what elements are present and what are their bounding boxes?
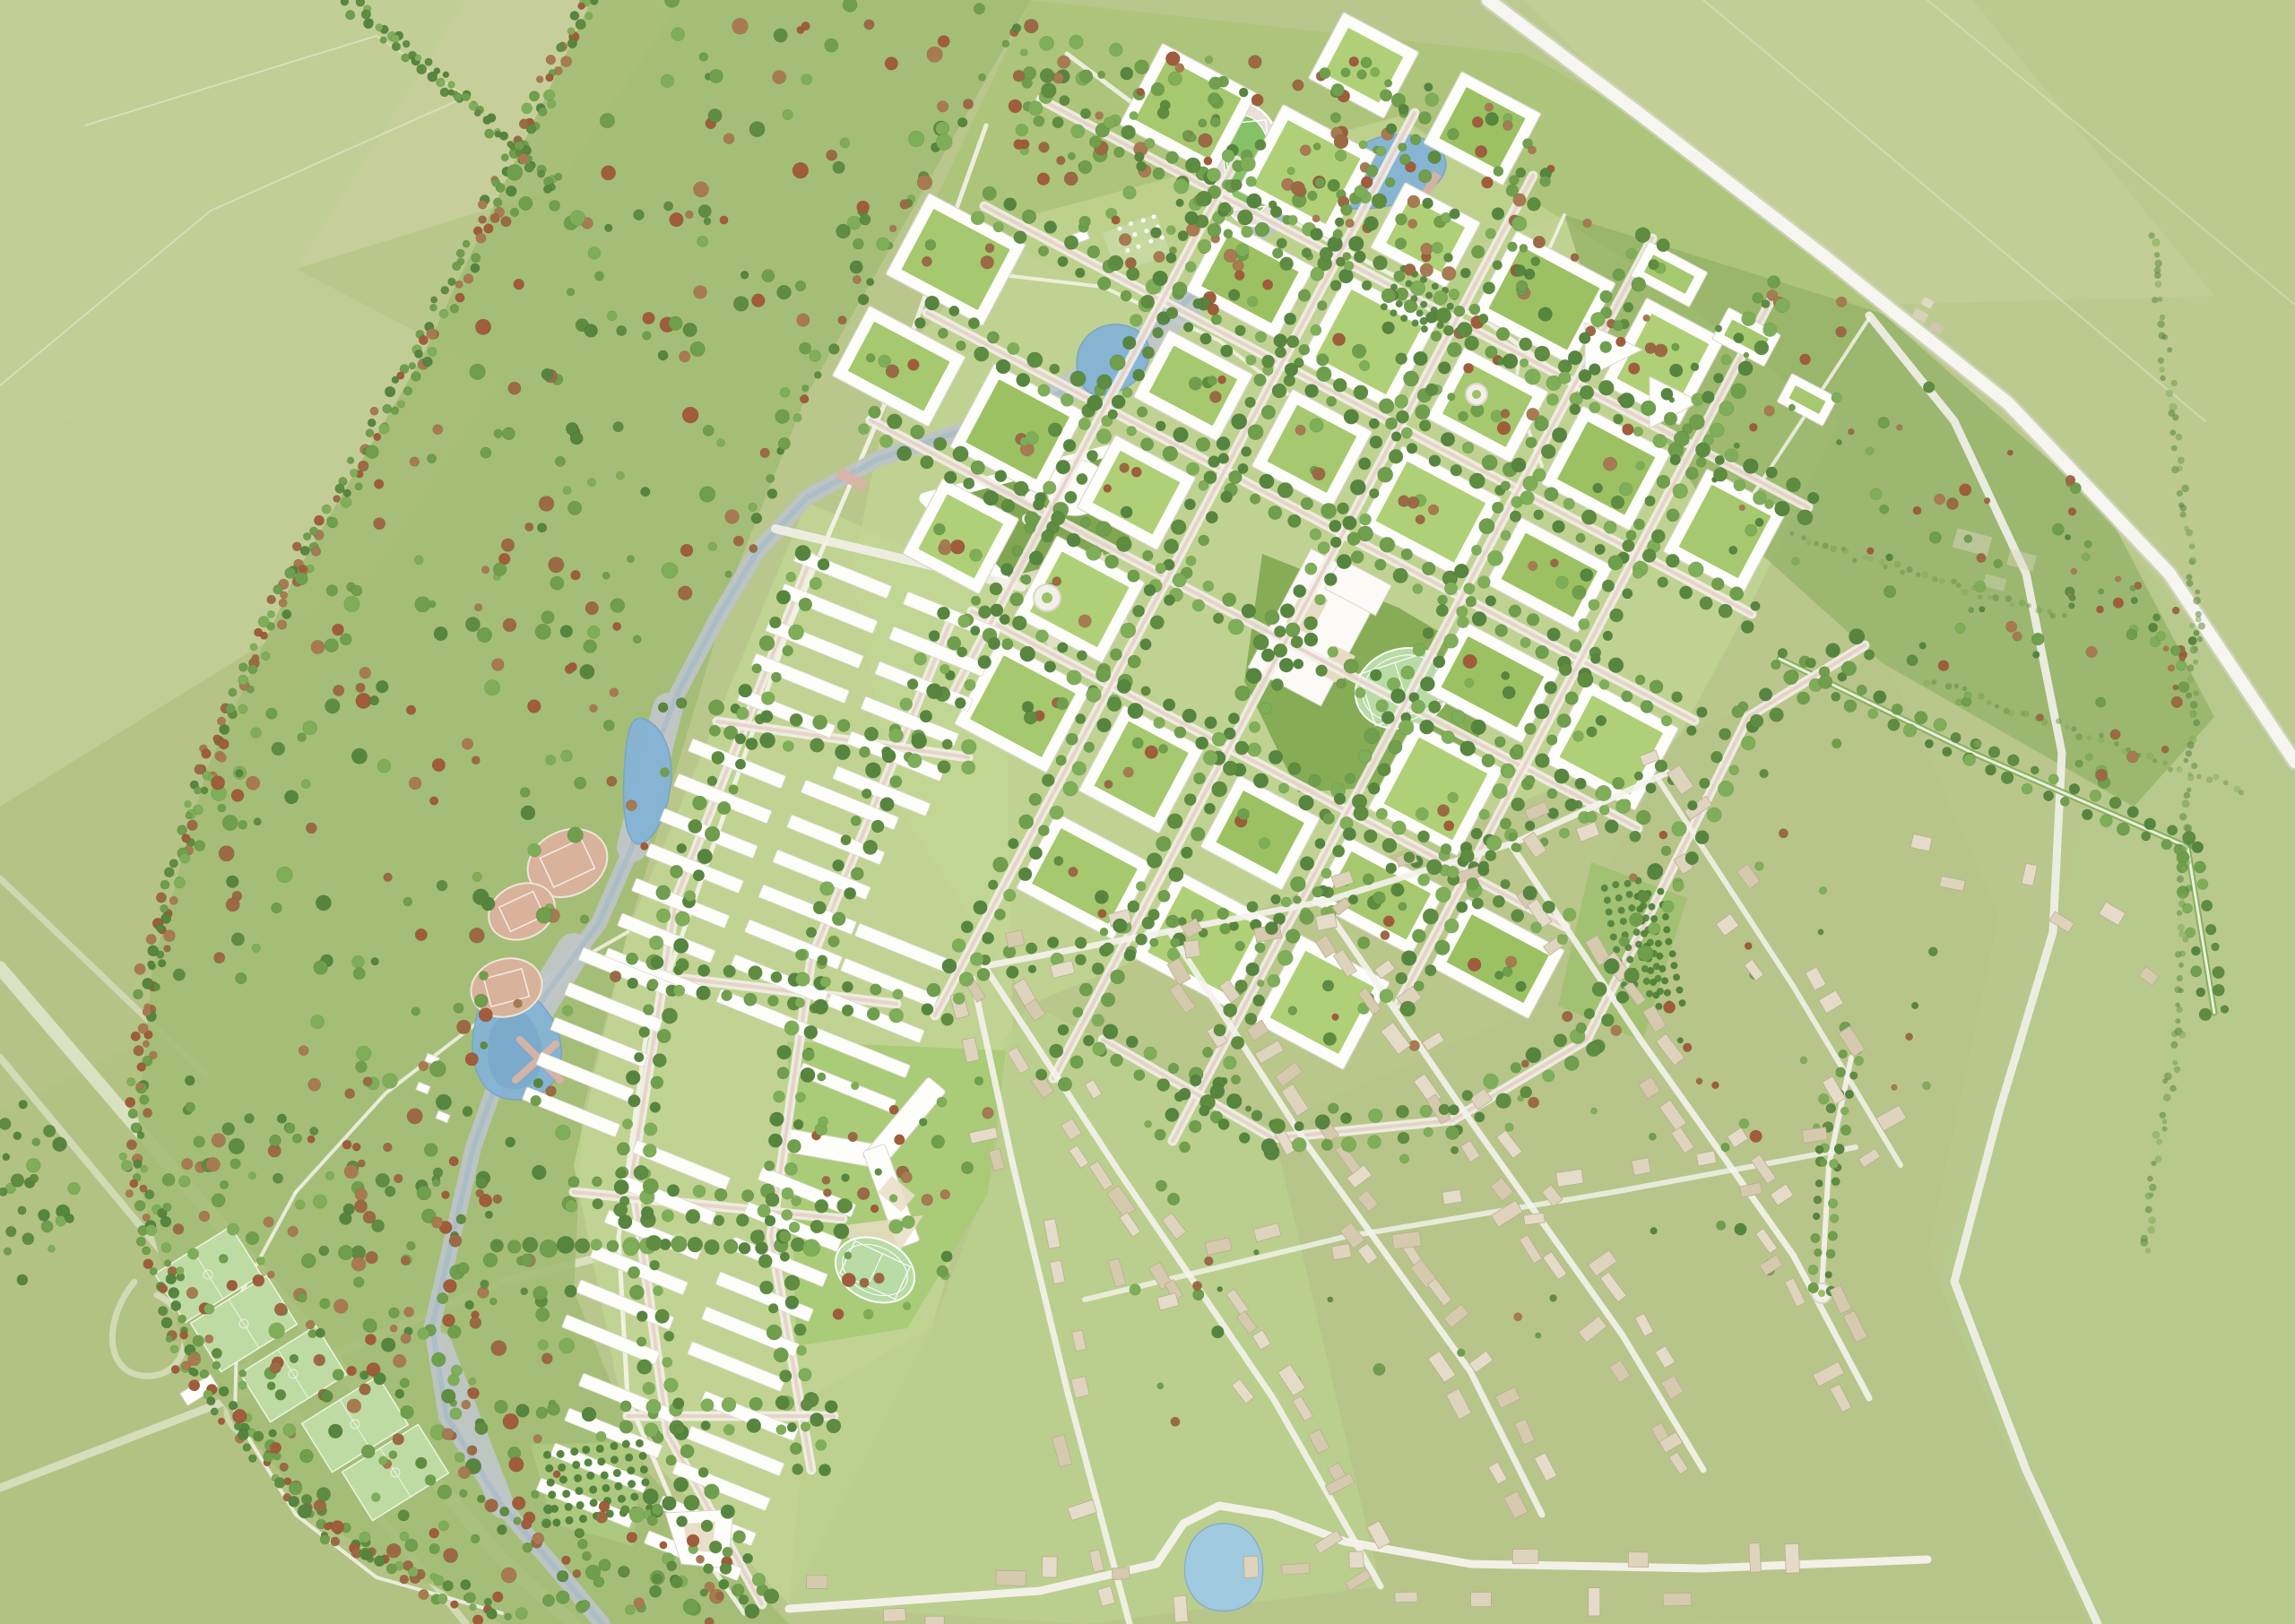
masterplan-map: [0, 0, 2295, 1624]
village-house: [1005, 930, 1024, 948]
village-house: [1183, 939, 1200, 958]
village-house: [807, 1576, 827, 1589]
village-house: [1589, 1588, 1600, 1616]
village-house: [1042, 1557, 1057, 1577]
village-house: [1471, 1592, 1492, 1606]
village-house: [1628, 1552, 1649, 1568]
village-house: [883, 1608, 905, 1621]
village-house: [1632, 1158, 1650, 1176]
village-house: [1243, 1556, 1259, 1577]
village-house: [1785, 1543, 1800, 1573]
village-house: [1663, 1593, 1692, 1605]
village-house: [1395, 1592, 1417, 1602]
village-house: [1331, 1244, 1351, 1260]
village-house: [1392, 1231, 1422, 1249]
roundabout-island: [1042, 592, 1052, 603]
masterplan-figure: [0, 0, 2295, 1624]
village-house: [925, 1616, 944, 1624]
roundabout-island: [1818, 1290, 1825, 1297]
village-house: [1349, 1551, 1364, 1568]
village-house: [1173, 1595, 1189, 1622]
roundabout-island: [1472, 390, 1481, 399]
village-house: [996, 1570, 1026, 1585]
village-house: [1282, 1563, 1311, 1575]
village-house: [1442, 1189, 1462, 1204]
village-house: [1749, 1542, 1762, 1572]
village-house: [1512, 1549, 1538, 1563]
village-house: [1524, 1213, 1546, 1225]
village-house: [1112, 1568, 1130, 1580]
